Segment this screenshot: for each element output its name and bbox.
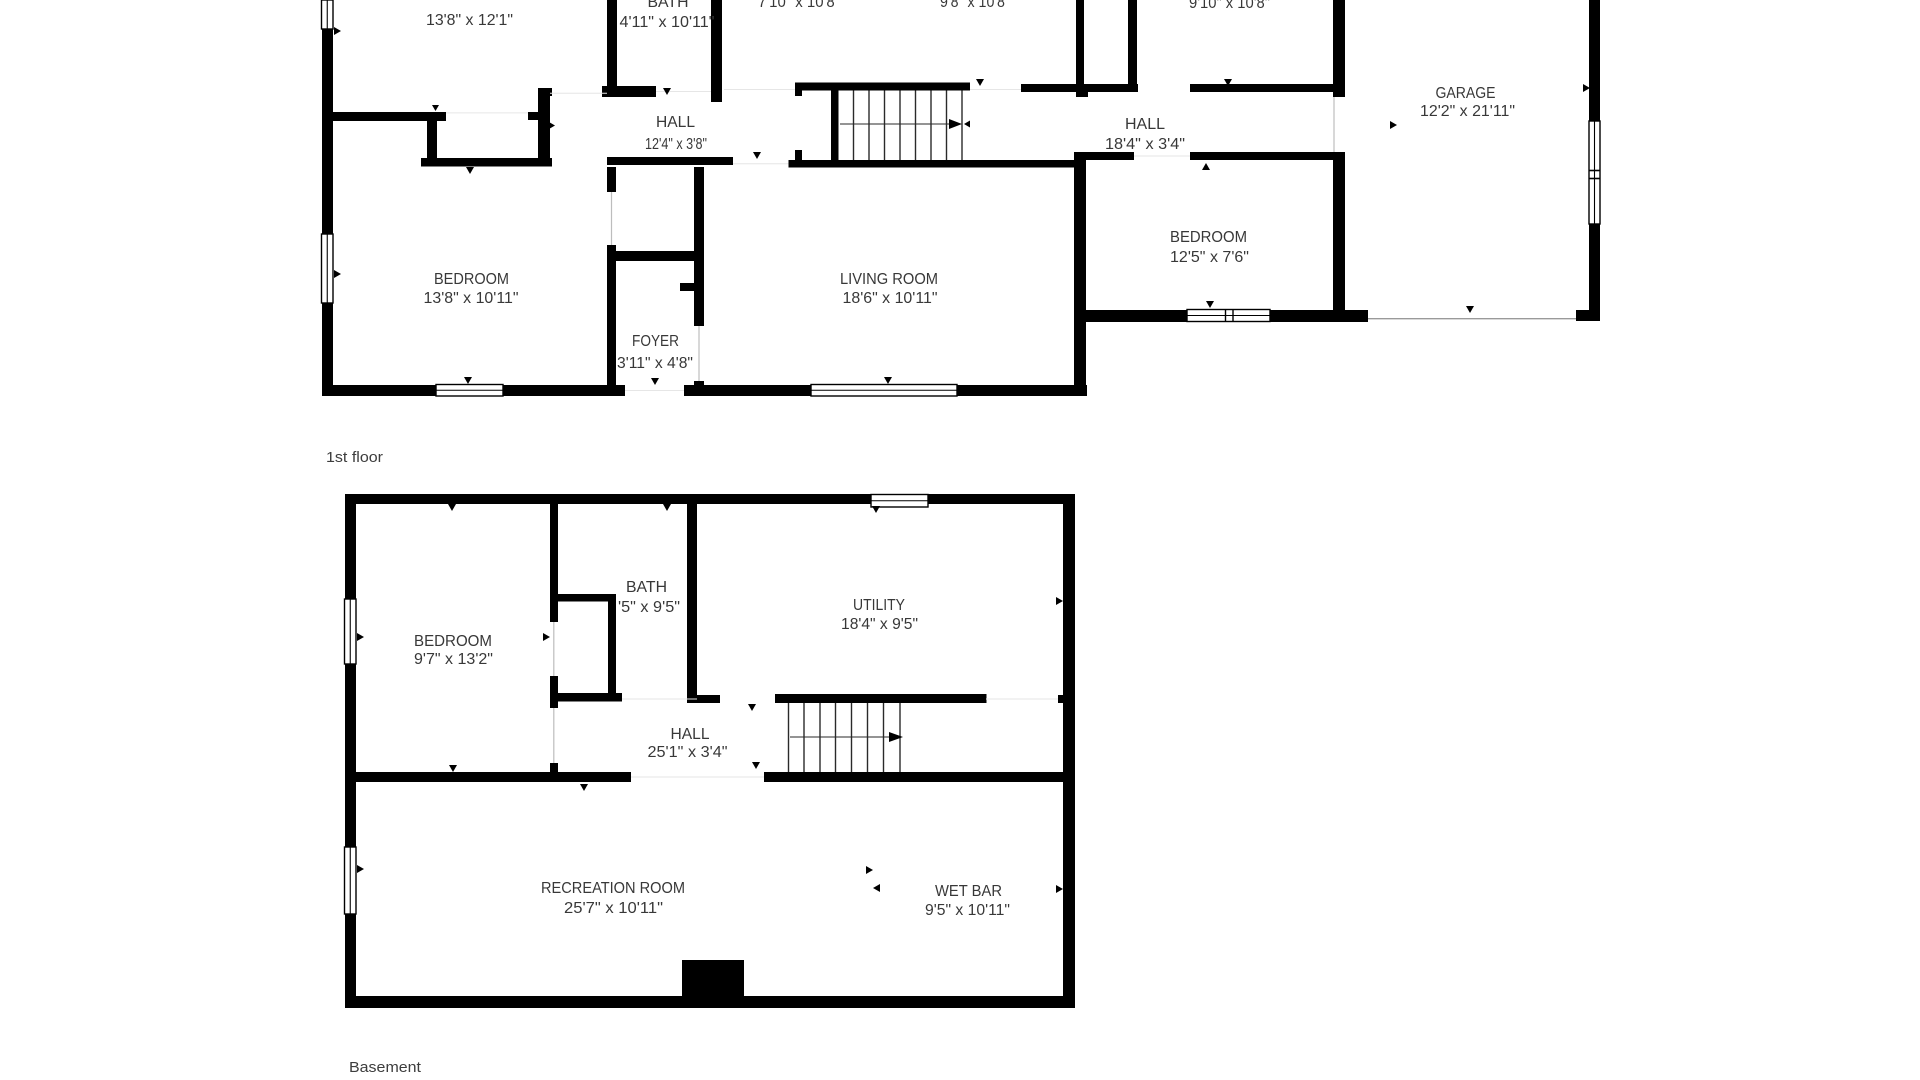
svg-text:'5" x 9'5": '5" x 9'5"	[618, 599, 680, 616]
svg-text:25'7" x 10'11": 25'7" x 10'11"	[564, 900, 663, 917]
svg-text:13'8" x 10'11": 13'8" x 10'11"	[424, 290, 519, 307]
svg-text:9'8" x 10'8": 9'8" x 10'8"	[940, 0, 1010, 11]
svg-text:18'6" x 10'11": 18'6" x 10'11"	[843, 290, 938, 307]
svg-text:7'10" x 10'8": 7'10" x 10'8"	[758, 0, 840, 11]
svg-text:LIVING ROOM: LIVING ROOM	[840, 271, 938, 288]
svg-text:FOYER: FOYER	[632, 333, 679, 350]
svg-text:BEDROOM: BEDROOM	[1170, 229, 1247, 246]
svg-text:HALL: HALL	[656, 114, 695, 131]
svg-text:9'5" x 10'11": 9'5" x 10'11"	[925, 902, 1010, 919]
svg-text:9'10" x 10'8": 9'10" x 10'8"	[1189, 0, 1270, 12]
svg-text:1st floor: 1st floor	[326, 449, 383, 466]
svg-text:3'11" x 4'8": 3'11" x 4'8"	[617, 355, 693, 372]
svg-text:13'8" x 12'1": 13'8" x 12'1"	[426, 12, 513, 29]
svg-text:BEDROOM: BEDROOM	[414, 633, 492, 650]
svg-text:Basement: Basement	[349, 1059, 422, 1076]
svg-text:GARAGE: GARAGE	[1436, 85, 1496, 102]
svg-text:12'5" x 7'6": 12'5" x 7'6"	[1170, 249, 1249, 266]
svg-text:18'4" x 9'5": 18'4" x 9'5"	[841, 616, 918, 633]
svg-text:12'2" x 21'11": 12'2" x 21'11"	[1420, 103, 1515, 120]
svg-text:HALL: HALL	[671, 726, 710, 743]
svg-text:12'4" x 3'8": 12'4" x 3'8"	[645, 136, 707, 153]
svg-text:9'7" x 13'2": 9'7" x 13'2"	[414, 651, 493, 668]
svg-text:WET BAR: WET BAR	[935, 883, 1002, 900]
svg-text:BEDROOM: BEDROOM	[434, 271, 509, 288]
svg-text:BATH: BATH	[648, 0, 689, 11]
svg-text:HALL: HALL	[1125, 116, 1165, 133]
svg-text:RECREATION ROOM: RECREATION ROOM	[541, 880, 685, 897]
svg-text:25'1" x 3'4": 25'1" x 3'4"	[648, 744, 728, 761]
svg-text:UTILITY: UTILITY	[853, 597, 905, 614]
svg-text:4'11" x 10'11": 4'11" x 10'11"	[620, 14, 715, 31]
svg-text:18'4" x 3'4": 18'4" x 3'4"	[1105, 136, 1185, 153]
svg-text:BATH: BATH	[626, 579, 667, 596]
